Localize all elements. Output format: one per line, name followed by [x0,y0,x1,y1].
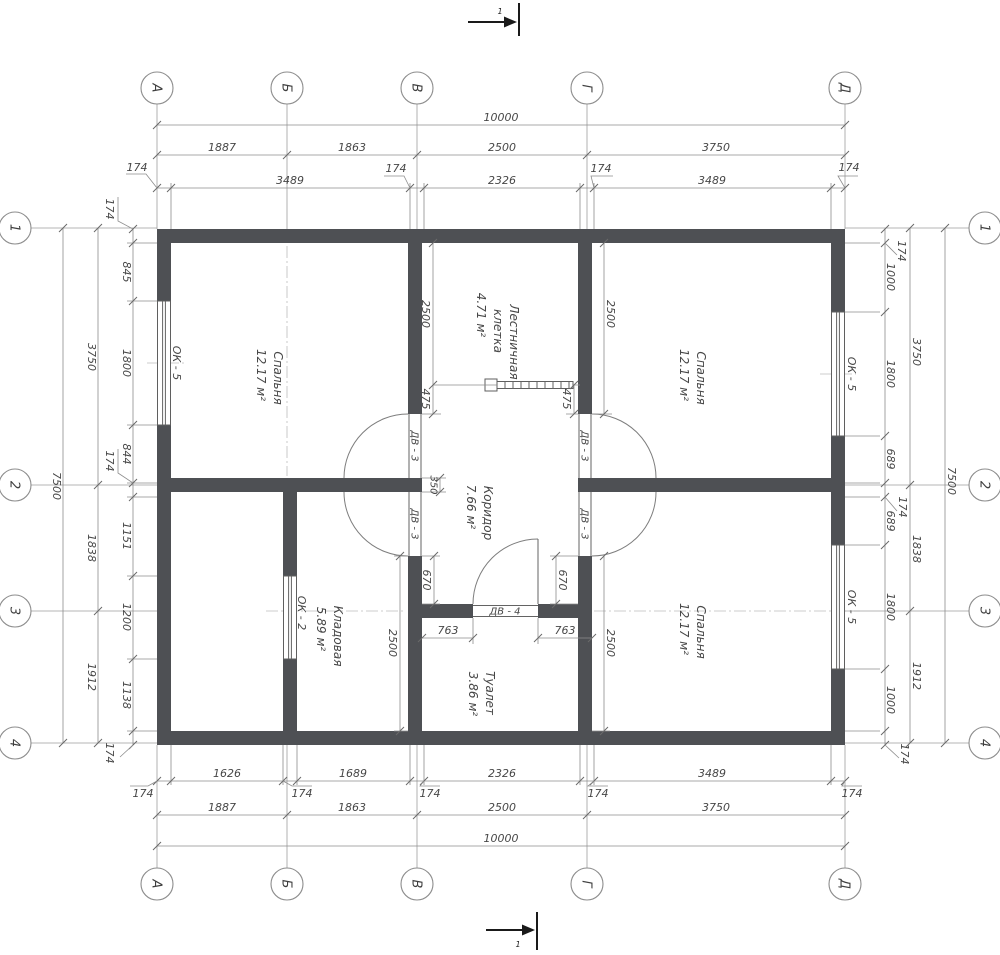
dim-label: 3750 [702,801,730,814]
dim-label: 1800 [884,360,897,388]
section-label: 1 [497,7,502,16]
window-label: ОК - 5 [845,357,858,391]
grid-label: Д [837,82,852,93]
room-name: клетка [491,309,505,353]
wall-corridor-left-bottom [408,556,422,731]
walls [157,229,845,745]
window-ok5-right-top [832,312,845,436]
dim-label: 689 [884,511,897,532]
grid-label: 1 [977,224,992,232]
room-area: 12.17 м² [254,349,268,401]
grid-label: В [409,880,424,889]
dim-label: 1887 [208,801,236,814]
grid-label: 4 [977,739,992,747]
dim-label-174: 174 [103,743,116,764]
room-area: 7.66 м² [464,485,478,530]
dim-label: 2500 [488,801,516,814]
dim-label-174: 174 [895,241,908,262]
door-label: ДВ - 3 [579,507,590,539]
dim-label: 1800 [120,349,133,377]
wall-row2-left [171,478,422,492]
room-area: 4.71 м² [474,293,488,338]
stair-flight [485,379,573,391]
room-area: 12.17 м² [677,603,691,655]
dim-label: 475 [560,389,573,410]
dim-label: 3750 [910,338,923,366]
grid-label: Б [279,84,294,93]
dim-label: 1000 [884,686,897,714]
room-name: Коридор [481,486,495,541]
wall-row2-right [578,478,831,492]
wall-left-upper [157,229,171,301]
room-name: Спальня [694,605,708,658]
room-area: 12.17 м² [677,349,691,401]
dim-label: 2326 [488,174,516,187]
dim-label-174: 174 [103,199,116,220]
dim-label: 1200 [120,603,133,631]
window-ok5-right-bottom [832,545,845,669]
dim-label-174: 174 [839,161,860,174]
room-area: 5.89 м² [314,607,328,652]
dim-label: 350 [428,475,439,494]
room-name: Спальня [694,351,708,404]
dim-label: 844 [120,444,133,465]
dim-label-174: 174 [591,162,612,175]
dim-label: 845 [120,262,133,283]
window-label: ОК - 5 [845,590,858,624]
grid-label: 2 [7,481,22,489]
dim-label: 10000 [484,111,519,124]
wall-corridor-right-bottom [578,556,592,731]
dim-label: 1000 [884,263,897,291]
grid-label: Д [837,878,852,889]
dim-label: 3750 [85,343,98,371]
dim-label: 763 [555,624,576,637]
door-arc-upper-right [592,414,656,478]
window-label: ОК - 2 [295,596,308,630]
grid-label: А [149,879,164,889]
dim-label-174: 174 [386,162,407,175]
wall-right-2 [831,436,845,545]
section-arrow-icon [522,925,535,936]
grid-label: 3 [7,607,22,615]
wall-storage-upper [283,492,297,576]
wall-storage-lower [283,659,297,731]
grid-label: 2 [977,481,992,489]
dim-label: 763 [438,624,459,637]
wall-right-1 [831,229,845,312]
wall-top [157,229,845,243]
dimensions-top: 10000 1887 1863 2500 3750 3489 2326 3489… [126,111,860,229]
dim-label: 7500 [945,467,958,495]
dim-label-174: 174 [127,161,148,174]
dim-label: 1626 [213,767,241,780]
dim-label: 1138 [120,681,133,709]
dim-label-174: 174 [133,787,154,800]
door-arc-upper-left [344,414,408,478]
dim-label-174: 174 [103,451,116,472]
doors [344,414,656,617]
dim-label: 670 [556,570,569,591]
wall-bottom [157,731,845,745]
wall-right-3 [831,669,845,745]
room-name: Лестничная [507,303,521,379]
section-marker-top: 1 [468,3,519,36]
dim-label: 2326 [488,767,516,780]
floor-plan-drawing: 10000 1887 1863 2500 3750 3489 2326 3489… [0,0,1000,955]
dim-label: 3489 [698,174,726,187]
section-arrow-icon [504,17,517,28]
axis-centerlines [147,246,860,611]
dim-label: 1863 [338,141,366,154]
dim-label: 1863 [338,801,366,814]
dim-label-174: 174 [588,787,609,800]
stair-rail [497,382,573,389]
dim-label: 1800 [884,593,897,621]
dim-label: 2500 [604,300,617,328]
dim-label: 2500 [488,141,516,154]
window-ok5-left [158,301,171,425]
door-label: ДВ - 3 [579,429,590,461]
dim-label: 1838 [910,535,923,563]
grid-label: 3 [977,607,992,615]
grid-label: 1 [7,224,22,232]
door-label: ДВ - 4 [488,607,520,618]
grid-label: В [409,84,424,93]
door-arc-lower-right [592,492,656,556]
dim-label: 3489 [698,767,726,780]
door-arc-toilet [473,539,538,604]
dim-label-174: 174 [420,787,441,800]
dim-label: 1838 [85,534,98,562]
section-marker-bottom: 1 [486,912,537,950]
dim-label: 1151 [120,522,133,550]
room-name: Спальня [271,351,285,404]
room-labels: Спальня 12.17 м² Спальня 12.17 м² Спальн… [254,293,708,717]
wall-toilet-right [538,604,592,618]
dim-label: 2500 [386,629,399,657]
dim-label: 3750 [702,141,730,154]
door-label: ДВ - 3 [409,429,420,461]
section-label: 1 [515,940,520,949]
dim-label: 670 [420,570,433,591]
dim-label: 10000 [484,832,519,845]
dimensions-right: 7500 3750 1838 1912 1000 1800 689 689 18… [845,224,958,765]
dim-label: 7500 [50,472,63,500]
dim-label-174: 174 [292,787,313,800]
wall-left-lower [157,425,171,745]
dim-label: 3489 [276,174,304,187]
floor-plan-svg: 10000 1887 1863 2500 3750 3489 2326 3489… [0,0,1000,955]
dim-label: 475 [419,389,432,410]
dim-label: 689 [884,449,897,470]
room-name: Кладовая [331,606,345,667]
dim-label: 1887 [208,141,236,154]
dimensions-left: 7500 3750 1838 1912 845 1800 844 1151 12… [50,197,157,764]
dim-label: 2500 [604,629,617,657]
dim-label: 1689 [339,767,367,780]
grid-label: 4 [7,739,22,747]
grid-label: Б [279,880,294,889]
door-label: ДВ - 3 [409,507,420,539]
room-area: 3.86 м² [466,672,480,717]
dim-label: 1912 [910,662,923,690]
grid-label: А [149,83,164,93]
dim-label: 2500 [419,300,432,328]
dim-label-174: 174 [842,787,863,800]
wall-toilet-left [422,604,473,618]
dim-label-174: 174 [896,497,909,518]
dim-label: 1912 [85,663,98,691]
door-arc-lower-left [344,492,408,556]
window-ok2-storage [284,576,297,659]
dimensions-bottom: 1626 1689 2326 3489 1887 1863 2500 3750 … [130,745,863,850]
wall-corridor-right-top [578,243,592,414]
room-name: Туалет [483,671,497,716]
window-label: ОК - 5 [170,346,183,380]
dim-label-174: 174 [898,744,911,765]
